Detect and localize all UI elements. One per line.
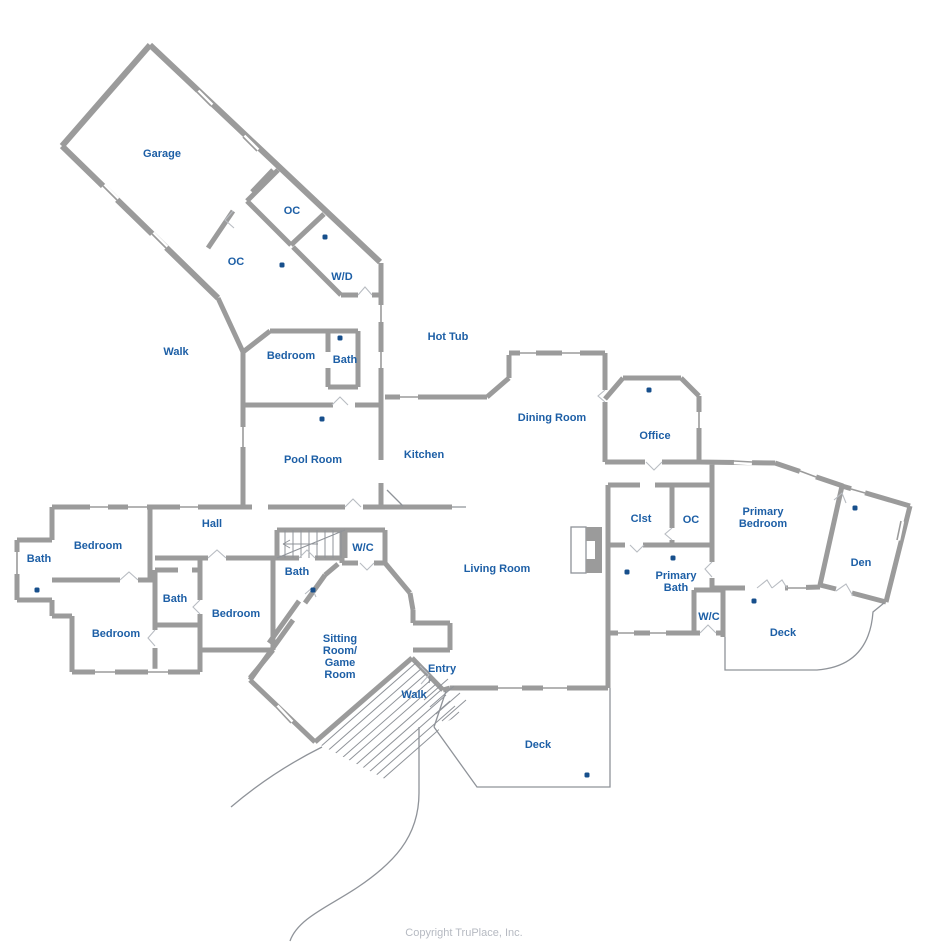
photo-point[interactable] <box>647 388 652 393</box>
door-marks <box>120 211 853 684</box>
photo-point[interactable] <box>35 588 40 593</box>
photo-point[interactable] <box>280 263 285 268</box>
garage-walls <box>62 45 380 298</box>
photo-point[interactable] <box>625 570 630 575</box>
windows <box>17 92 901 723</box>
photo-point[interactable] <box>338 336 343 341</box>
interior-walls <box>17 170 910 742</box>
floorplan: GarageOCOCW/DWalkBedroomBathHot TubPool … <box>0 0 932 949</box>
floorplan-walls <box>0 0 932 949</box>
photo-point[interactable] <box>585 773 590 778</box>
photo-point[interactable] <box>320 417 325 422</box>
photo-point[interactable] <box>671 556 676 561</box>
fireplace <box>571 527 602 573</box>
photo-point[interactable] <box>853 506 858 511</box>
photo-point[interactable] <box>752 599 757 604</box>
copyright-text: Copyright TruPlace, Inc. <box>405 927 522 939</box>
photo-point[interactable] <box>311 588 316 593</box>
photo-point[interactable] <box>323 235 328 240</box>
